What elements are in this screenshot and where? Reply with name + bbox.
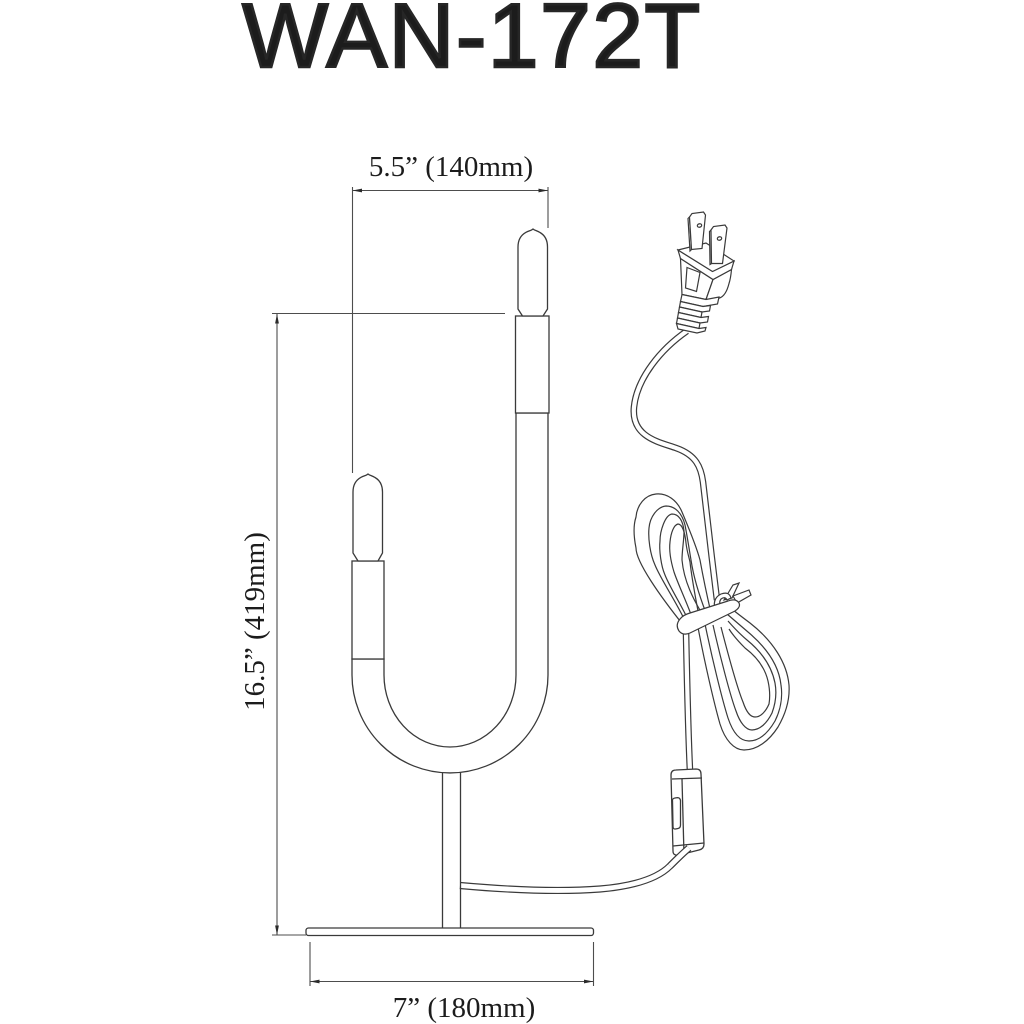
svg-text:7” (180mm): 7” (180mm) (393, 992, 536, 1024)
svg-text:16.5” (419mm): 16.5” (419mm) (239, 532, 271, 711)
svg-text:5.5” (140mm): 5.5” (140mm) (369, 151, 533, 183)
svg-text:WAN-172T: WAN-172T (242, 0, 701, 87)
